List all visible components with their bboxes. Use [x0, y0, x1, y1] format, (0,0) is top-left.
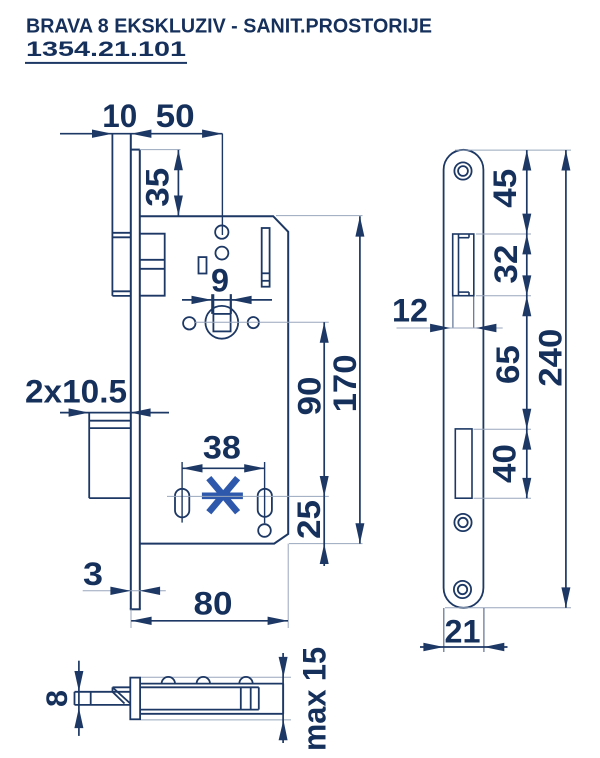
- svg-text:2x10.5: 2x10.5: [25, 374, 127, 410]
- svg-text:25: 25: [291, 500, 327, 539]
- svg-text:BRAVA 8 EKSKLUZIV - SANIT.PROS: BRAVA 8 EKSKLUZIV - SANIT.PROSTORIJE: [26, 15, 432, 37]
- svg-text:90: 90: [292, 377, 328, 416]
- svg-text:12: 12: [392, 292, 428, 328]
- svg-text:50: 50: [156, 98, 195, 134]
- svg-text:38: 38: [203, 429, 241, 465]
- svg-text:35: 35: [140, 168, 176, 207]
- svg-text:45: 45: [487, 169, 523, 208]
- svg-text:9: 9: [211, 263, 229, 299]
- svg-text:40: 40: [487, 444, 523, 483]
- svg-text:3: 3: [83, 556, 103, 592]
- svg-text:1354.21.101: 1354.21.101: [26, 37, 186, 61]
- svg-text:8: 8: [41, 690, 74, 707]
- svg-text:max 15: max 15: [296, 647, 332, 751]
- svg-text:170: 170: [327, 354, 363, 412]
- svg-text:80: 80: [194, 586, 233, 622]
- svg-text:21: 21: [445, 614, 481, 650]
- svg-text:32: 32: [488, 245, 524, 284]
- svg-text:65: 65: [490, 345, 526, 384]
- svg-text:240: 240: [533, 329, 569, 387]
- svg-text:10: 10: [102, 98, 137, 134]
